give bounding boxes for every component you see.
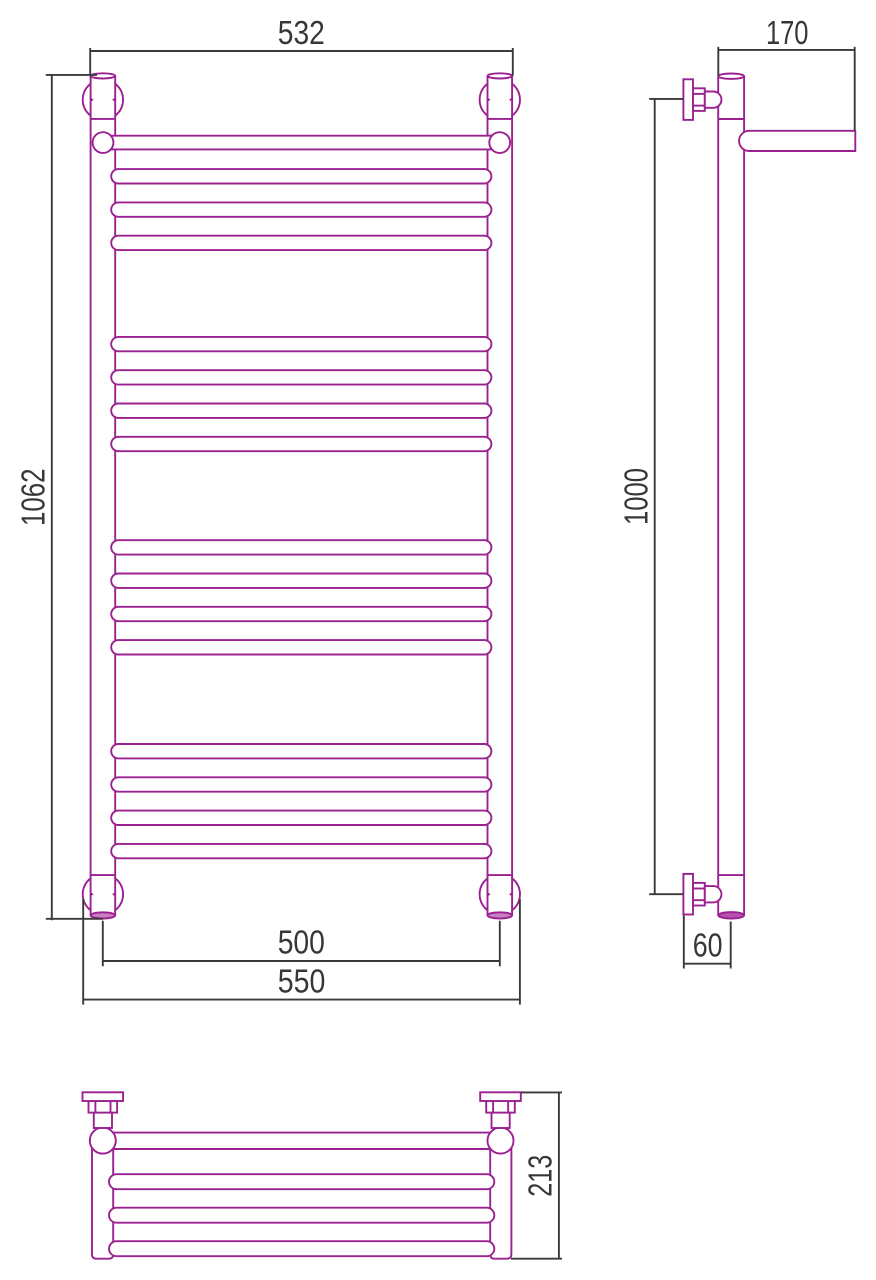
svg-text:1000: 1000 xyxy=(617,468,654,525)
svg-text:170: 170 xyxy=(766,14,809,51)
svg-text:60: 60 xyxy=(693,927,723,964)
svg-text:1062: 1062 xyxy=(15,468,52,526)
svg-text:213: 213 xyxy=(521,1155,558,1197)
svg-text:500: 500 xyxy=(278,923,325,960)
svg-text:532: 532 xyxy=(278,14,325,51)
svg-text:550: 550 xyxy=(278,962,326,999)
